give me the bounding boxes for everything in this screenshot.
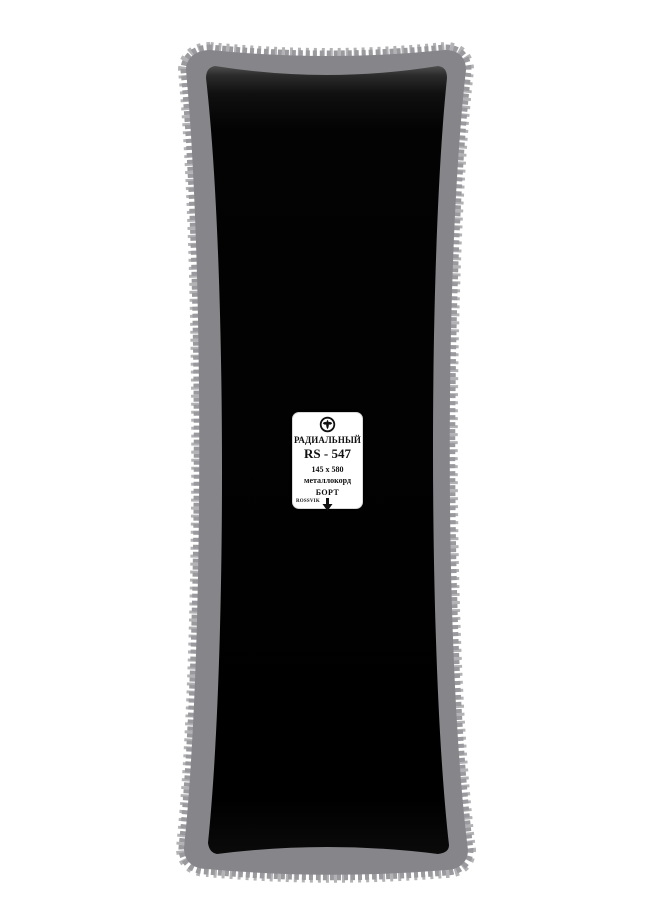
product-model: RS - 547 [304, 446, 351, 462]
product-size: 145 x 580 [312, 465, 344, 474]
down-arrow-icon [322, 498, 333, 511]
product-cord-type: металлокорд [304, 476, 351, 485]
brand-name: ROSSVIK [296, 499, 320, 504]
rossvik-logo-icon [319, 416, 336, 433]
product-type-label: РАДИАЛЬНЫЙ [294, 435, 361, 445]
product-image: РАДИАЛЬНЫЙ RS - 547 145 x 580 металлокор… [0, 0, 650, 919]
product-label: РАДИАЛЬНЫЙ RS - 547 145 x 580 металлокор… [292, 412, 363, 509]
bead-direction-label: БОРТ [316, 488, 339, 497]
